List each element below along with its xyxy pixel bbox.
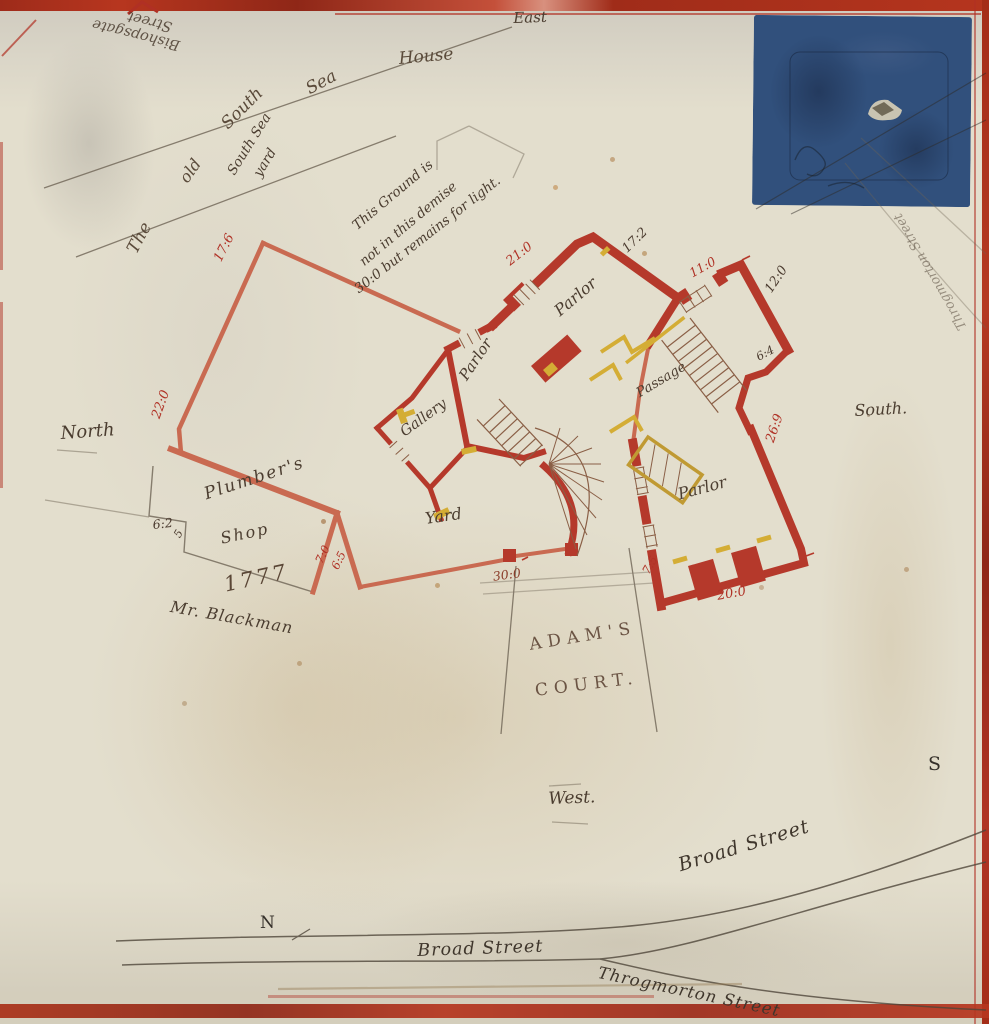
street-broad-horizontal: Broad Street [417,938,544,962]
room-parlor-top: Parlor [551,274,600,319]
border-top [0,0,989,11]
label-north: North [60,420,115,444]
label-year: 1777 [222,560,291,596]
label-east: East [513,9,547,27]
title-the: The [124,219,156,256]
street-broad-diagonal: Broad Street [676,816,812,876]
border-right [982,0,989,1024]
room-gallery: Gallery [398,397,450,441]
dim-6-2-frac: 5 [172,528,186,540]
title-sea: Sea [303,67,340,98]
street-throgmorton-side: Throgmorton Street [892,210,971,332]
label-s: S [928,754,941,775]
label-blackman: Mr. Blackman [169,598,295,637]
dim-26-9: 26:9 [764,412,787,444]
dim-6-4: 6:4 [754,343,776,363]
wall-details [487,256,814,601]
dim-6-5: 6:5 [329,549,348,571]
room-yard: Yard [424,505,463,528]
dim-12-0: 12:0 [763,264,791,296]
label-adams-court-line1: ADAM'S [528,619,638,654]
dim-21-0: 21:0 [504,240,536,269]
border-top-line [335,13,981,15]
stairs [477,315,747,556]
room-passage: Passage [634,360,689,401]
ground-note-line3: 30:0 but remains for light. [352,174,504,297]
dim-11-0: 11:0 [687,254,718,280]
room-plumbers-line2: Shop [219,520,271,547]
border-left-seg2 [0,302,3,488]
border-left-seg1 [0,142,3,270]
border-right-line [974,0,976,1024]
border-bottom [0,1004,989,1018]
room-plumbers-line1: Plumber's [202,454,307,504]
ground-note-line1: This Ground is [350,158,436,234]
plan-sheet: East House The old South Sea South Sea y… [0,0,989,1024]
dim-6-2: 6:2 [152,516,173,532]
border-bottom-dash [268,995,654,998]
dim-20-0: 20:0 [716,585,747,604]
title-house: House [398,45,454,68]
dim-22-0: 22:0 [150,389,173,421]
label-west: West. [548,788,596,808]
room-parlor-left: Parlor [456,335,496,383]
label-adams-court-line2: COURT. [534,669,640,700]
label-n: N [260,914,275,933]
dim-17-6: 17:6 [212,232,238,265]
blue-paper-patch [752,15,972,207]
room-parlor-right: Parlor [676,473,729,503]
dim-7-5: 7:5 [640,554,660,576]
dim-30-0: 30:0 [492,566,522,584]
label-south: South. [854,399,908,419]
title-old: old [176,156,205,187]
dim-17-2: 17:2 [620,226,651,257]
yard-label-line2: yard [251,146,280,180]
